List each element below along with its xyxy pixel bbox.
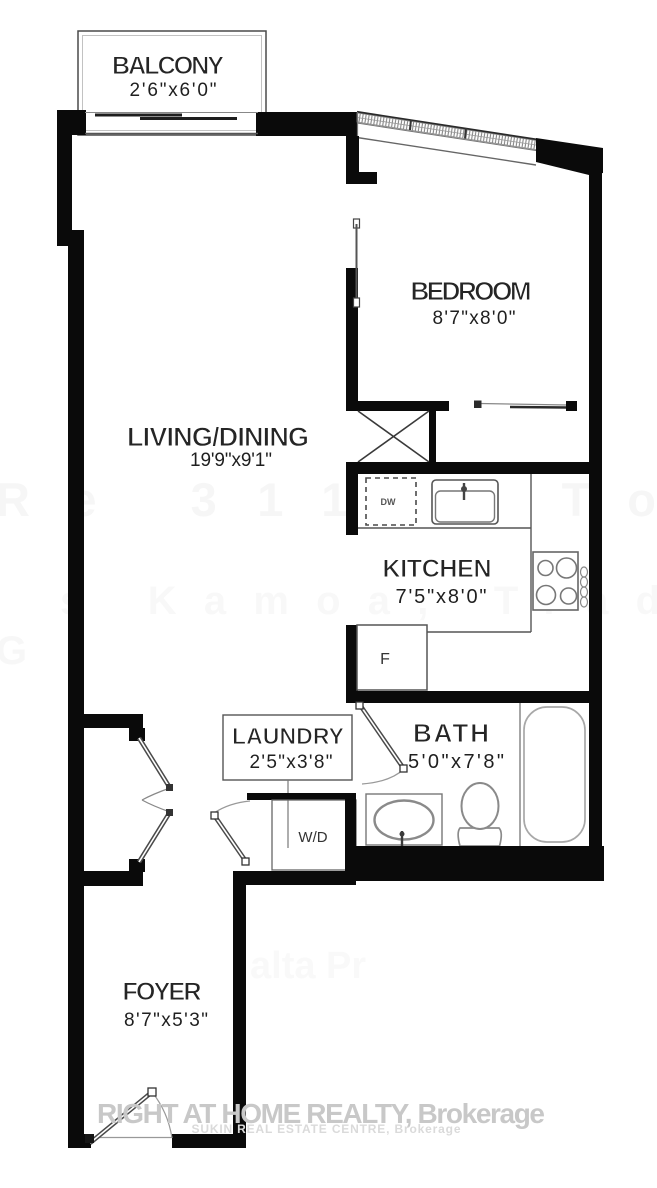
svg-text:LIVING/DINING: LIVING/DINING [127,422,309,452]
svg-text:BATH: BATH [413,718,489,748]
svg-text:2'5"x3'8": 2'5"x3'8" [250,752,333,773]
svg-text:SUKIN REAL ESTATE CENTRE, Brok: SUKIN REAL ESTATE CENTRE, Brokerage [192,1122,461,1136]
svg-text:BALCONY: BALCONY [112,52,224,80]
svg-text:alta Pr: alta Pr [250,945,366,987]
svg-text:LAUNDRY: LAUNDRY [232,723,344,749]
svg-text:8'7"x5'3": 8'7"x5'3" [124,1010,208,1031]
svg-text:7'5"x8'0": 7'5"x8'0" [396,586,487,608]
svg-text:19'9"x9'1": 19'9"x9'1" [190,450,272,471]
svg-text:FOYER: FOYER [123,978,202,1006]
svg-text:DW: DW [381,497,396,507]
svg-text:F: F [380,651,390,668]
svg-text:2'6"x6'0": 2'6"x6'0" [130,80,217,101]
svg-text:Re 3116, To: Re 3116, To [0,473,656,526]
svg-text:G: G [0,629,27,673]
svg-text:BEDROOM: BEDROOM [411,276,532,306]
svg-text:KITCHEN: KITCHEN [383,555,492,583]
svg-text:W/D: W/D [298,829,327,846]
svg-text:5'0"x7'8": 5'0"x7'8" [408,751,504,773]
svg-text:8'7"x8'0": 8'7"x8'0" [433,308,516,329]
